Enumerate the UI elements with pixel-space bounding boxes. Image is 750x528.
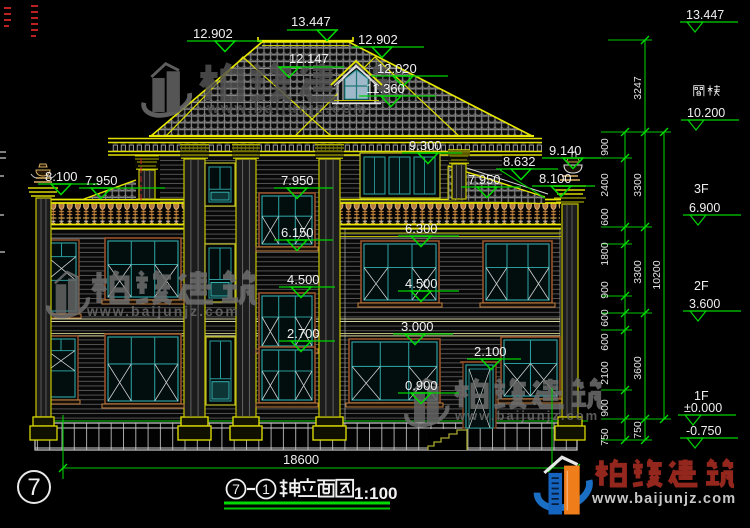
svg-text:3F: 3F	[694, 182, 709, 196]
svg-text:7: 7	[27, 474, 40, 501]
svg-text:12.902: 12.902	[193, 26, 233, 41]
svg-text:3247: 3247	[632, 76, 644, 100]
svg-text:4.500: 4.500	[405, 276, 438, 291]
svg-text:10.200: 10.200	[687, 106, 725, 120]
svg-text:12.147: 12.147	[289, 51, 329, 66]
svg-text:750: 750	[599, 428, 611, 446]
svg-text:2100: 2100	[599, 361, 611, 385]
svg-text:13.447: 13.447	[291, 14, 331, 29]
svg-text:6.150: 6.150	[281, 225, 314, 240]
svg-text:1800: 1800	[599, 242, 611, 266]
svg-text:10200: 10200	[651, 260, 663, 289]
svg-text:7.950: 7.950	[281, 173, 314, 188]
svg-text:900: 900	[599, 281, 611, 299]
svg-text:2F: 2F	[694, 279, 709, 293]
svg-text:2.100: 2.100	[474, 344, 507, 359]
svg-text:600: 600	[599, 309, 611, 327]
svg-text:11.360: 11.360	[366, 81, 405, 96]
svg-text:1: 1	[262, 481, 270, 497]
svg-text:8.100: 8.100	[45, 169, 78, 184]
svg-text:3.600: 3.600	[689, 297, 720, 311]
svg-text:±0.000: ±0.000	[684, 401, 722, 415]
svg-text:0.900: 0.900	[405, 378, 438, 393]
svg-text:600: 600	[599, 333, 611, 351]
svg-text:3300: 3300	[632, 173, 644, 197]
svg-text:8.100: 8.100	[539, 171, 572, 186]
svg-text:1:100: 1:100	[354, 484, 397, 503]
svg-text:13.447: 13.447	[686, 8, 724, 22]
svg-text:3300: 3300	[632, 260, 644, 284]
svg-text:7: 7	[232, 481, 240, 497]
svg-text:900: 900	[599, 399, 611, 417]
svg-text:12.020: 12.020	[377, 61, 417, 76]
svg-text:12.902: 12.902	[358, 32, 398, 47]
svg-text:2400: 2400	[599, 173, 611, 197]
svg-text:3600: 3600	[632, 356, 644, 380]
svg-text:2.700: 2.700	[287, 326, 320, 341]
svg-text:750: 750	[632, 421, 644, 439]
svg-text:www.baijunjz.com: www.baijunjz.com	[591, 491, 736, 507]
svg-text:7.950: 7.950	[468, 172, 501, 187]
svg-text:4.500: 4.500	[287, 272, 320, 287]
svg-text:600: 600	[599, 208, 611, 226]
svg-text:3.000: 3.000	[401, 319, 434, 334]
svg-text:1F: 1F	[694, 389, 709, 403]
svg-text:900: 900	[599, 138, 611, 156]
svg-text:9.140: 9.140	[549, 143, 582, 158]
svg-text:18600: 18600	[283, 452, 319, 467]
svg-text:7.950: 7.950	[85, 173, 118, 188]
svg-text:8.632: 8.632	[503, 154, 536, 169]
svg-text:6.900: 6.900	[689, 201, 720, 215]
svg-text:6.300: 6.300	[405, 221, 438, 236]
svg-text:-0.750: -0.750	[686, 424, 721, 438]
svg-text:www.baijunjz.com: www.baijunjz.com	[454, 408, 599, 423]
svg-text:9.300: 9.300	[409, 138, 442, 153]
svg-text:www.baijunjz.com: www.baijunjz.com	[86, 303, 240, 319]
